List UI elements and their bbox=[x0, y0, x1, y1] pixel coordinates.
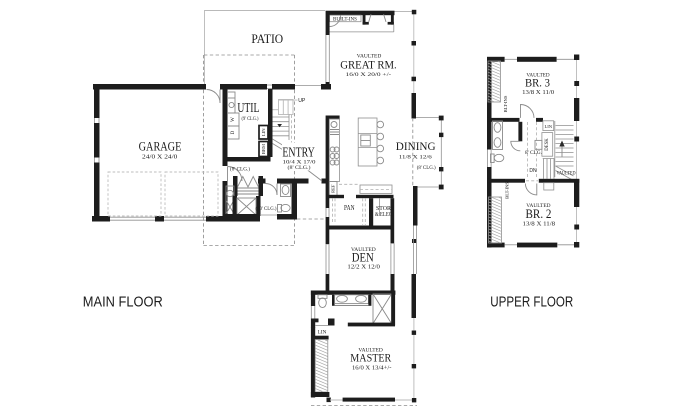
svg-text:MASTER: MASTER bbox=[350, 351, 391, 364]
svg-text:REF: REF bbox=[331, 184, 336, 193]
svg-text:12/2 X 12/0: 12/2 X 12/0 bbox=[347, 265, 380, 271]
svg-text:(9' CLG.): (9' CLG.) bbox=[242, 115, 259, 122]
svg-text:UP: UP bbox=[298, 98, 306, 104]
svg-text:16/0 X 20/0 +/-: 16/0 X 20/0 +/- bbox=[346, 72, 392, 78]
svg-text:D: D bbox=[231, 130, 236, 134]
svg-text:(8' CLG.): (8' CLG.) bbox=[417, 164, 436, 171]
svg-text:UPPER FLOOR: UPPER FLOOR bbox=[490, 293, 573, 310]
svg-text:DEN: DEN bbox=[352, 251, 374, 265]
svg-text:MAIN FLOOR: MAIN FLOOR bbox=[83, 293, 163, 310]
svg-text:BUILT-INS: BUILT-INS bbox=[333, 16, 357, 22]
svg-text:DN: DN bbox=[529, 168, 537, 174]
svg-text:W: W bbox=[231, 117, 236, 122]
svg-text:16/0 X 13/4+/-: 16/0 X 13/4+/- bbox=[352, 365, 391, 371]
svg-text:BLT-INS: BLT-INS bbox=[505, 182, 510, 199]
svg-text:24/0 X 24/0: 24/0 X 24/0 bbox=[142, 153, 177, 160]
svg-text:VAULTED: VAULTED bbox=[557, 172, 576, 177]
svg-text:GREAT RM.: GREAT RM. bbox=[340, 60, 397, 72]
svg-text:11/8 X 12/6: 11/8 X 12/6 bbox=[399, 154, 432, 160]
svg-text:(8' CLG.): (8' CLG.) bbox=[288, 164, 311, 171]
svg-text:BLT-INS: BLT-INS bbox=[503, 95, 508, 112]
svg-text:BR. 2: BR. 2 bbox=[526, 207, 552, 221]
svg-text:& ELEC: & ELEC bbox=[375, 211, 392, 218]
svg-text:UTIL: UTIL bbox=[237, 100, 259, 115]
svg-text:DINING: DINING bbox=[396, 141, 436, 153]
svg-text:ENTRY: ENTRY bbox=[282, 144, 315, 159]
svg-text:PAN: PAN bbox=[344, 204, 355, 212]
svg-text:13/8 X 11/0: 13/8 X 11/0 bbox=[522, 90, 554, 96]
svg-text:LIN: LIN bbox=[544, 124, 552, 129]
svg-text:DESK: DESK bbox=[545, 138, 550, 151]
svg-text:LIN: LIN bbox=[318, 330, 327, 336]
svg-text:BRM: BRM bbox=[261, 144, 266, 154]
svg-text:BR. 3: BR. 3 bbox=[525, 76, 550, 90]
svg-text:(10' CLG.): (10' CLG.) bbox=[256, 205, 277, 212]
svg-text:(8' CLG.): (8' CLG.) bbox=[230, 166, 250, 173]
svg-text:8' CLG.: 8' CLG. bbox=[525, 151, 542, 156]
svg-text:LIN: LIN bbox=[261, 128, 266, 136]
svg-text:GARAGE: GARAGE bbox=[139, 139, 182, 154]
svg-text:13/8 X 11/8: 13/8 X 11/8 bbox=[523, 221, 556, 227]
svg-text:PATIO: PATIO bbox=[251, 31, 283, 46]
